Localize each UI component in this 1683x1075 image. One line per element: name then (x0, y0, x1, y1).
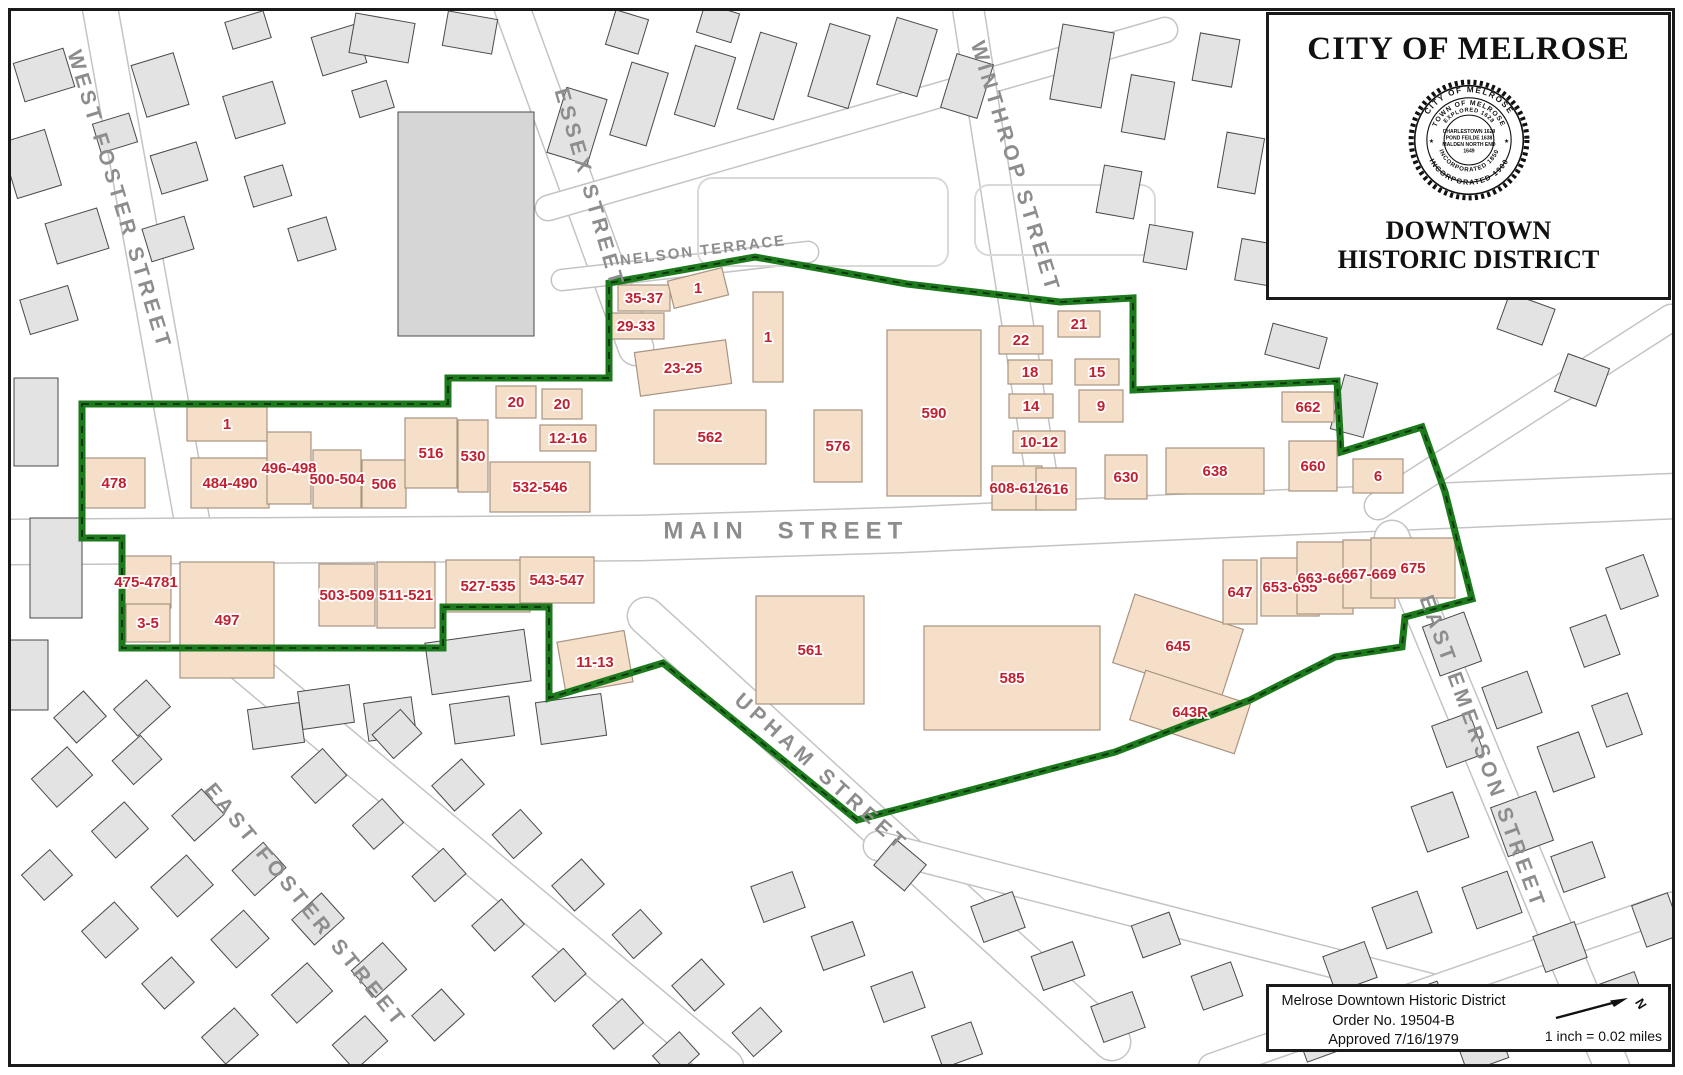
background-building (142, 957, 194, 1009)
building-number-label: 14 (1023, 398, 1040, 415)
background-building (211, 910, 269, 968)
background-building (1592, 693, 1643, 747)
street-label: MAIN (663, 517, 748, 544)
seal-star-right: ★ (1503, 138, 1508, 145)
seal-star-left: ★ (1428, 138, 1433, 145)
background-building (931, 1022, 982, 1068)
north-arrow-label: N (1632, 996, 1650, 1012)
background-building (112, 735, 162, 784)
building-number-label: 497 (214, 612, 239, 629)
building-number-label: 516 (418, 445, 443, 462)
background-building (288, 217, 336, 261)
background-building (1191, 962, 1243, 1010)
background-building (1143, 224, 1193, 269)
building-number-label: 543-547 (529, 572, 584, 589)
building-number-label: 503-509 (319, 587, 374, 604)
building-number-label: 22 (1013, 332, 1030, 349)
building-number-label: 35-37 (625, 290, 663, 307)
background-building (8, 640, 48, 710)
background-building (225, 11, 271, 49)
background-building (31, 747, 92, 807)
building-number-label: 667-669 (1341, 566, 1396, 583)
seal-center-line2: POND FEILDE 1638 (1445, 135, 1492, 141)
background-building (1551, 842, 1605, 893)
building-number-label: 608-612 (989, 480, 1044, 497)
background-building (92, 802, 149, 858)
background-building (412, 989, 464, 1041)
building-number-label: 500-504 (309, 471, 365, 488)
building-number-label: 532-546 (512, 479, 567, 496)
background-building (672, 959, 724, 1011)
building-number-label: 675 (1400, 560, 1425, 577)
background-building (808, 24, 870, 109)
building-number-label: 561 (797, 642, 822, 659)
background-building (1096, 165, 1142, 219)
background-building (1606, 554, 1659, 609)
background-building (1372, 891, 1432, 949)
background-building (82, 902, 139, 958)
background-building (1462, 871, 1522, 929)
background-building (737, 32, 797, 120)
background-building (492, 809, 542, 858)
background-building (674, 45, 735, 126)
building-number-label: 10-12 (1020, 434, 1058, 451)
background-building (1482, 671, 1542, 729)
building-number-label: 645 (1165, 638, 1190, 655)
background-building (605, 10, 648, 54)
background-building (298, 685, 355, 730)
street-label: STREET (778, 517, 909, 544)
background-building (223, 81, 286, 138)
building-number-label: 530 (460, 448, 485, 465)
background-building (1050, 24, 1114, 108)
background-building (247, 703, 304, 750)
building-number-label: 11-13 (576, 654, 614, 671)
building-number-label: 1 (764, 329, 772, 346)
background-building (1192, 33, 1240, 87)
building-number-label: 6 (1374, 468, 1382, 485)
info-district-name: Melrose Downtown Historic District (1269, 992, 1518, 1012)
background-building (131, 53, 189, 118)
building-number-label: 506 (371, 476, 396, 493)
building-number-label: 511-521 (379, 587, 433, 604)
background-building (14, 378, 58, 466)
building-number-label: 638 (1202, 463, 1227, 480)
building-number-label: 585 (999, 670, 1024, 687)
background-building (610, 62, 669, 146)
building-number-label: 12-16 (549, 430, 587, 447)
seal-center-line1: CHARLESTOWN 1629 (1442, 129, 1495, 135)
building-number-label: 15 (1089, 364, 1106, 381)
info-box: Melrose Downtown Historic District Order… (1266, 984, 1671, 1052)
background-building (1570, 615, 1620, 667)
building-number-label: 18 (1022, 364, 1039, 381)
background-building (202, 1008, 259, 1064)
map-subtitle-line2: HISTORIC DISTRICT (1269, 245, 1668, 274)
building-number-label: 643R (1172, 704, 1208, 721)
background-building (271, 963, 332, 1023)
north-arrow-line (1556, 1002, 1616, 1018)
background-building (1217, 132, 1264, 194)
seal-center-line3: MALDEN NORTH END (1442, 142, 1495, 148)
street-label: EAST EMERSON STREET (1414, 592, 1549, 913)
building-number-label: 3-5 (137, 615, 159, 632)
building-number-label: 20 (554, 396, 571, 413)
map-subtitle-line1: DOWNTOWN (1269, 216, 1668, 245)
background-building (244, 165, 292, 207)
background-building (811, 922, 865, 971)
street-label: UPHAM STREET (730, 689, 913, 857)
background-building (30, 518, 82, 618)
title-box: CITY OF MELROSE CITY OF MELROSE (1266, 12, 1671, 300)
background-building (54, 691, 106, 743)
background-building (22, 850, 73, 901)
scale-text: 1 inch = 0.02 miles (1545, 1028, 1662, 1044)
background-building (442, 11, 497, 54)
building-number-label: 630 (1113, 469, 1138, 486)
background-building (450, 696, 515, 744)
building-number-label: 647 (1227, 584, 1252, 601)
building-number-label: 616 (1043, 481, 1068, 498)
building-number-label: 478 (101, 475, 126, 492)
building-number-label: 562 (697, 429, 722, 446)
north-arrow-head (1610, 998, 1628, 1007)
background-building (150, 142, 208, 194)
background-building (20, 285, 78, 334)
background-building (612, 909, 662, 958)
background-building (751, 872, 805, 923)
city-seal: CITY OF MELROSE TOWN OF MELROSE EXPLORED… (1403, 74, 1535, 206)
info-order-number: Order No. 19504-B (1269, 1012, 1518, 1032)
building-number-label: 662 (1295, 399, 1320, 416)
building-number-label: 21 (1071, 316, 1088, 333)
background-building (732, 1007, 782, 1056)
building-number-label: 9 (1097, 398, 1105, 415)
seal-center-line4: 1649 (1463, 149, 1474, 155)
building-number-label: 1 (223, 416, 231, 433)
building-number-label: 484-490 (202, 475, 257, 492)
building-number-label: 20 (508, 394, 525, 411)
background-building (871, 972, 925, 1023)
background-building (1497, 293, 1555, 345)
background-building (398, 112, 534, 336)
building-number-label: 29-33 (617, 318, 655, 335)
background-building (1121, 75, 1174, 140)
background-building (114, 680, 171, 736)
background-building (151, 855, 213, 917)
map-page: WEST FOSTER STREETESSEX STREETWINTHROP S… (0, 0, 1683, 1075)
background-building (332, 1016, 387, 1071)
background-building (1411, 792, 1469, 852)
building-number-label: 496-498 (261, 460, 316, 477)
building-number-label: 475-4781 (114, 574, 177, 591)
north-arrow: N (1550, 990, 1650, 1029)
building-number-label: 576 (825, 438, 850, 455)
building-number-label: 23-25 (664, 360, 702, 377)
background-building (1265, 323, 1327, 368)
map-title: CITY OF MELROSE (1269, 31, 1668, 68)
building-number-label: 590 (921, 405, 946, 422)
building-number-label: 660 (1300, 458, 1325, 475)
background-building (45, 208, 109, 264)
background-building (1537, 732, 1595, 792)
building-number-label: 527-535 (460, 578, 515, 595)
info-approval-date: Approved 7/16/1979 (1269, 1031, 1518, 1051)
building-number-label: 1 (694, 280, 702, 297)
background-building (352, 80, 395, 117)
